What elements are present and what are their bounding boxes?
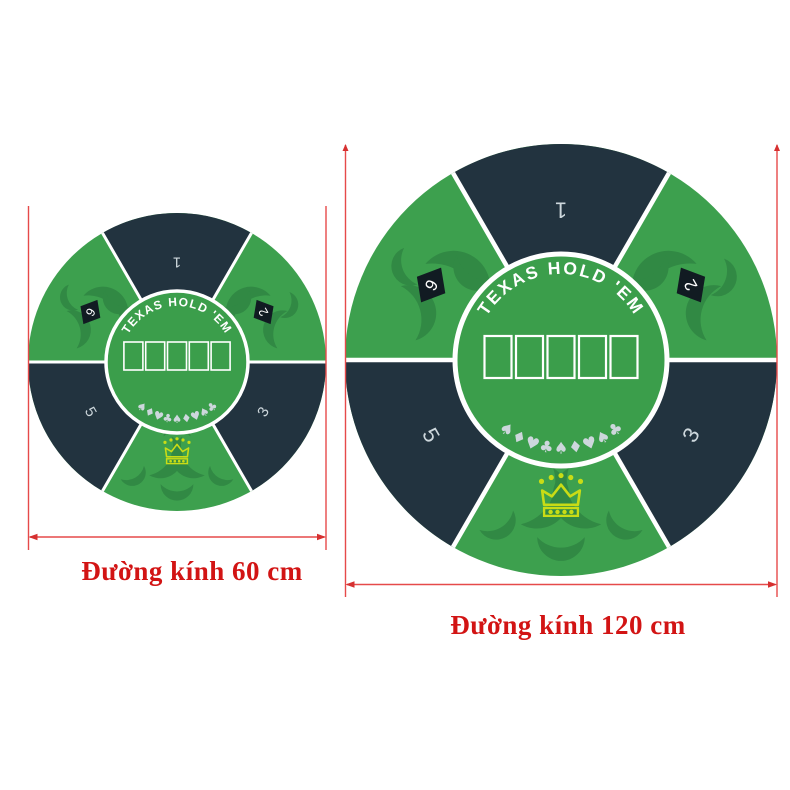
dimension-annotations [0, 0, 790, 790]
dimension-arrow-right [317, 534, 326, 540]
extension-line-tip [343, 144, 349, 151]
diameter-label-120cm: Đường kính 120 cm [408, 610, 728, 641]
diameter-label-60cm: Đường kính 60 cm [32, 556, 352, 587]
dimension-arrow-left [29, 534, 38, 540]
product-image: TEXAS HOLD 'EM♠♦♥♣♠♦♥♠♣12356 TEXAS HOLD … [0, 0, 790, 790]
extension-line-tip [774, 144, 780, 151]
dimension-arrow-right [768, 581, 777, 587]
